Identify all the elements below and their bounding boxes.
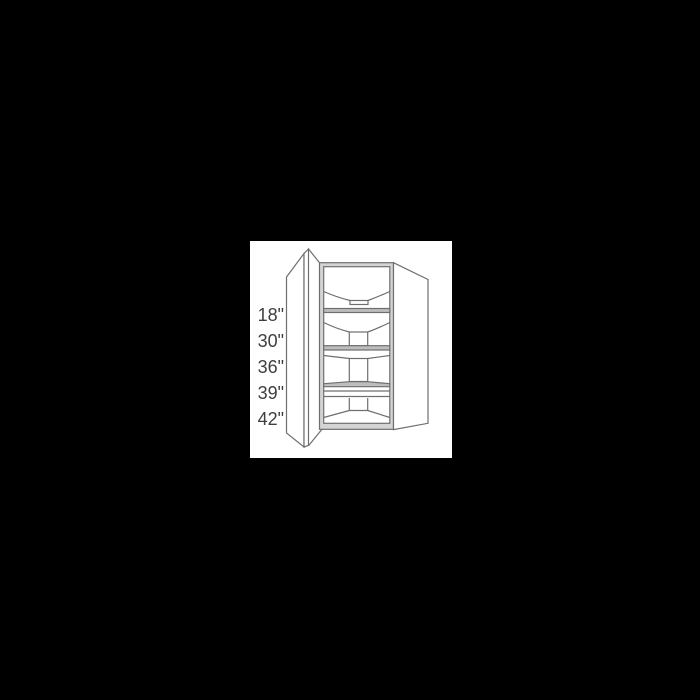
dimension-label: 42"	[250, 406, 284, 432]
shelf-hub	[350, 301, 368, 305]
background: { "canvas": { "background_color": "#0000…	[0, 0, 700, 700]
dimension-label: 18"	[250, 302, 284, 328]
dimension-label: 36"	[250, 354, 284, 380]
cabinet-open-door	[287, 249, 323, 447]
shelf-band	[324, 382, 390, 387]
dimension-labels: 18" 30" 36" 39" 42"	[250, 302, 284, 432]
dimension-label: 39"	[250, 380, 284, 406]
cabinet-right-panel	[394, 263, 429, 430]
shelf-pole	[349, 332, 367, 346]
shelf-band	[324, 309, 390, 313]
dimension-label: 30"	[250, 328, 284, 354]
shelf-pole	[349, 359, 367, 382]
shelf-band	[324, 346, 390, 350]
cabinet-diagram-image: 18" 30" 36" 39" 42"	[250, 241, 452, 458]
